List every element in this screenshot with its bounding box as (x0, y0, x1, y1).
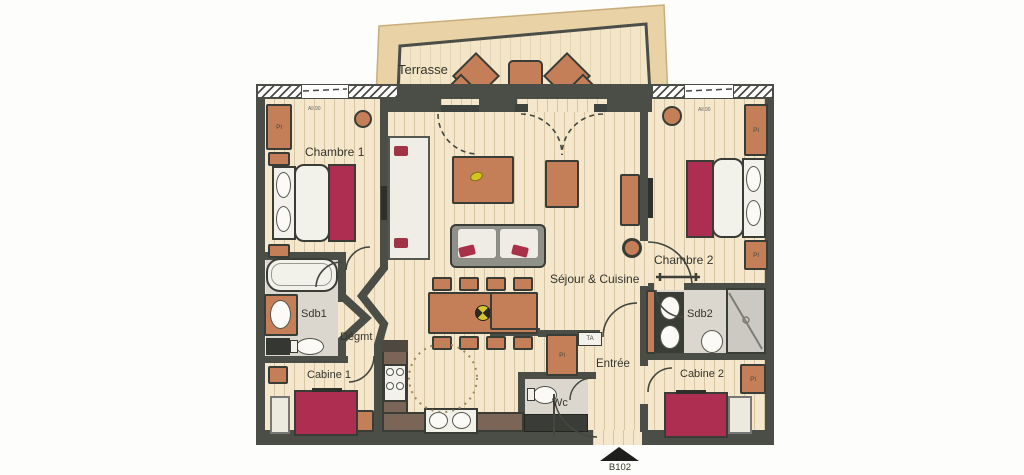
chambre2-stool (662, 106, 682, 126)
chambre2-tv (648, 178, 653, 218)
door-jamb-left (515, 104, 528, 112)
cabine1-chair (270, 396, 290, 434)
kitchen-shelf (382, 340, 408, 352)
hatch-wall-1 (257, 85, 302, 98)
label-degmt: Dégmt (340, 331, 372, 343)
dining-chair-6 (459, 336, 479, 350)
wall-corridor-cabine2 (640, 404, 648, 432)
dining-table-decor (475, 305, 491, 321)
chambre2-pillow-2 (746, 200, 761, 226)
wall-left (256, 84, 265, 445)
wc-toilet-tank (527, 388, 535, 401)
cabine2-closet-label: Pl (742, 366, 764, 392)
chambre2-closet-top-label: Pl (746, 106, 766, 154)
wall-sdb2-south (648, 353, 766, 360)
cabine1-headboard (312, 388, 342, 392)
chambre1-closet: Pl (266, 104, 292, 150)
sdb2-toilet (701, 330, 723, 353)
label-cabine1: Cabine 1 (307, 369, 351, 381)
sdb1-dark-unit (266, 338, 290, 355)
label-sejour-cuisine: Séjour & Cuisine (550, 272, 639, 286)
entree-closet: Pl (546, 334, 578, 376)
hatch-wall-4 (733, 85, 773, 98)
chambre1-nightstand-top (268, 152, 290, 166)
hatch-wall-3 (652, 85, 685, 98)
sdb2-shower (726, 288, 766, 354)
cabine2-closet: Pl (740, 364, 766, 394)
burner-4 (396, 382, 404, 390)
dining-chair-5 (432, 336, 452, 350)
desk-living (620, 174, 640, 226)
entrance-arrow-icon (600, 447, 639, 461)
sdb1-basin (270, 300, 291, 329)
wall-cabine1-east (374, 344, 382, 432)
ta-label: TA (586, 336, 593, 342)
sink-basin-2 (452, 412, 471, 429)
chambre1-pillow-2 (276, 206, 291, 232)
chambre2-duvet (712, 158, 744, 238)
chambre1-bed-blanket (328, 164, 356, 242)
cabine2-bed (664, 392, 728, 438)
dining-chair-1 (432, 277, 452, 291)
label-sill-1: All.90 (308, 106, 321, 112)
cabine2-headboard (676, 390, 706, 394)
label-terrasse: Terrasse (398, 62, 448, 77)
door-jamb-right (594, 104, 607, 112)
wall-living-chambre2-a (640, 99, 648, 241)
sdb2-basin-1 (660, 296, 680, 320)
chambre1-closet-label: Pl (268, 106, 290, 148)
chambre2-bed-blanket (686, 160, 714, 238)
chambre2-closet-top: Pl (744, 104, 768, 156)
cabine2-chair (728, 396, 752, 434)
hatch-wall-2 (348, 85, 398, 98)
chambre2-closet-bottom-label: Pl (746, 242, 766, 268)
label-wc: Wc (552, 397, 568, 409)
entrance-threshold (593, 430, 642, 445)
chambre1-stool (354, 110, 372, 128)
sdb2-vanity-edge (646, 290, 656, 354)
dining-chair-8 (513, 336, 533, 350)
window-chambre2 (685, 85, 733, 98)
burner-1 (386, 368, 394, 376)
chambre1-tv (381, 186, 387, 220)
stool-living (622, 238, 642, 258)
chambre2-pillow-1 (746, 166, 761, 192)
wall-sdb1-east (338, 252, 346, 302)
wc-counter (524, 414, 588, 432)
chambre1-pillow-1 (276, 172, 291, 198)
entree-ta-box: TA (578, 332, 602, 346)
label-chambre2: Chambre 2 (654, 253, 713, 267)
terrace-floor (398, 24, 650, 93)
wall-sdb1-south (265, 356, 348, 363)
chambre1-nightstand-bottom (268, 244, 290, 258)
chambre2-closet-bottom: Pl (744, 240, 768, 270)
coffee-table (452, 156, 514, 204)
sdb1-toilet-bowl (296, 338, 324, 355)
sdb1-toilet-tank (290, 340, 298, 353)
window-sill-block (441, 105, 479, 112)
burner-3 (386, 382, 394, 390)
label-sdb1: Sdb1 (301, 308, 327, 320)
floorplan-b102: Pl (0, 0, 1024, 475)
burner-2 (396, 368, 404, 376)
cabine1-nightstand (356, 410, 374, 432)
sdb2-basin-2 (660, 325, 680, 349)
dining-chair-3 (486, 277, 506, 291)
bathtub-inner (271, 263, 332, 286)
kitchen-tall-cabinet (490, 292, 538, 330)
label-sdb2: Sdb2 (687, 308, 713, 320)
dining-chair-2 (459, 277, 479, 291)
wall-sdb2-north-a (648, 283, 654, 290)
label-chambre1: Chambre 1 (305, 145, 364, 159)
wardrobe-hanger-1 (394, 146, 408, 156)
entree-closet-label: Pl (548, 336, 576, 374)
sink-basin-1 (429, 412, 448, 429)
side-table (545, 160, 579, 208)
cabine1-shelf (268, 366, 288, 384)
chambre1-duvet (294, 164, 330, 242)
label-cabine2: Cabine 2 (680, 368, 724, 380)
label-entree: Entrée (596, 358, 630, 370)
label-sill-2: All.90 (698, 107, 711, 113)
wardrobe-hanger-2 (394, 238, 408, 248)
label-unit: B102 (600, 462, 640, 473)
dining-chair-4 (513, 277, 533, 291)
cabine1-bed (294, 390, 358, 436)
window-chambre1 (302, 85, 348, 98)
dining-chair-7 (486, 336, 506, 350)
wall-chambre1-living (380, 99, 388, 259)
